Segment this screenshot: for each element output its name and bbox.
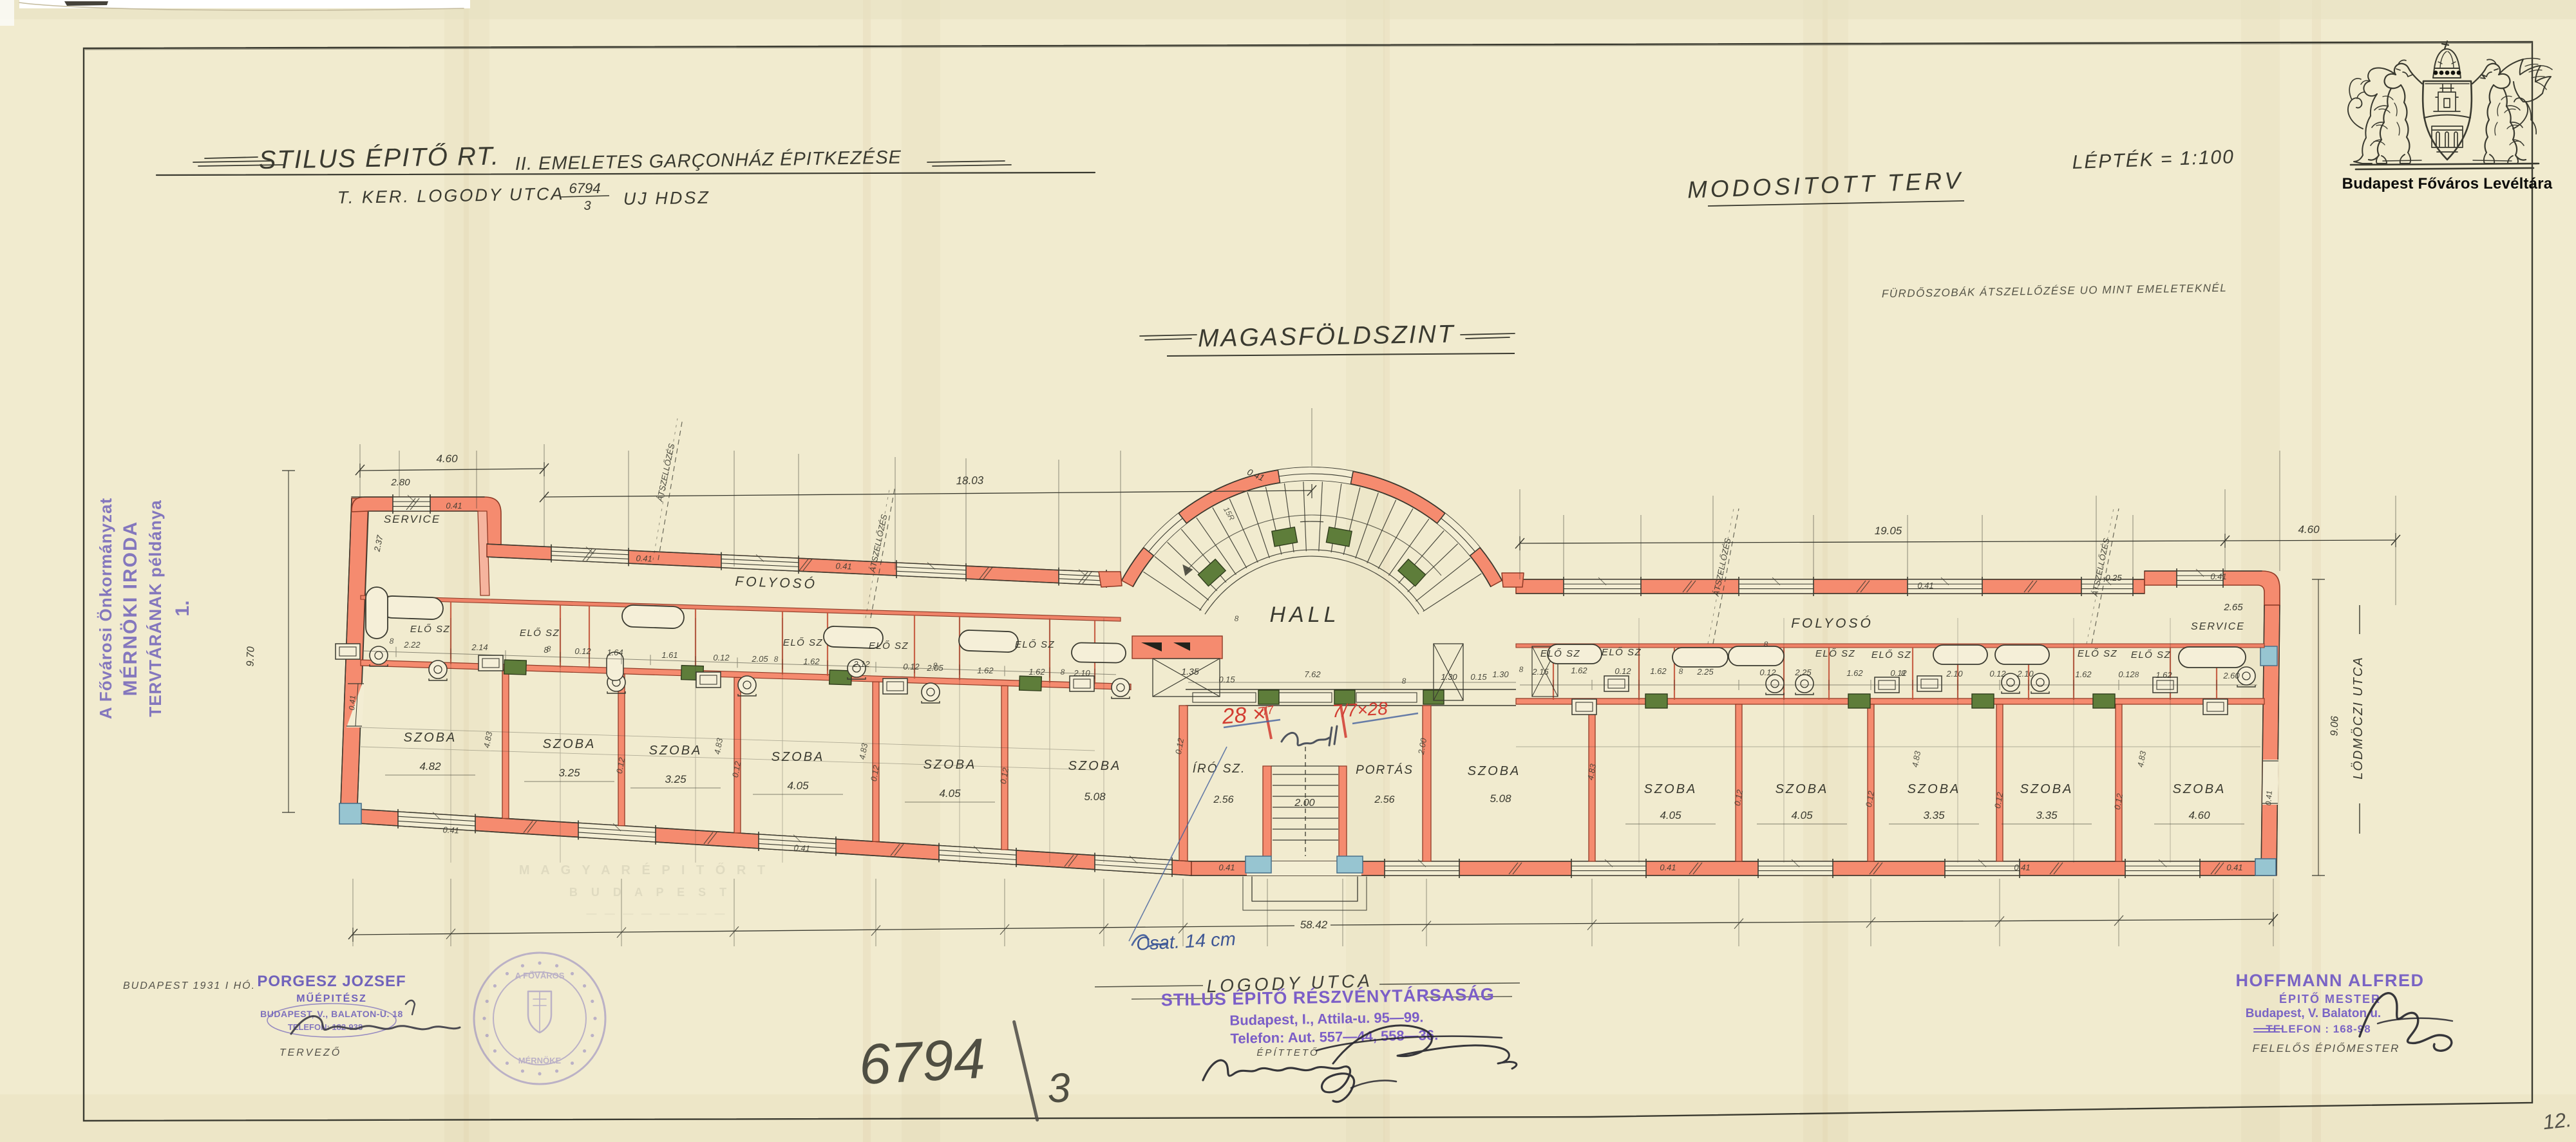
svg-text:FELELŐS ÉPIŐMESTER: FELELŐS ÉPIŐMESTER [2253, 1042, 2400, 1054]
svg-text:ELŐ SZ: ELŐ SZ [1815, 648, 1855, 659]
svg-text:8: 8 [1764, 640, 1768, 649]
svg-text:HOFFMANN ALFRED: HOFFMANN ALFRED [2236, 971, 2425, 990]
svg-text:4.05: 4.05 [1660, 809, 1681, 821]
svg-text:0.41: 0.41 [1660, 863, 1676, 872]
svg-text:8: 8 [1061, 668, 1065, 677]
svg-text:7.62: 7.62 [1304, 669, 1321, 679]
svg-text:0.41: 0.41 [347, 695, 357, 711]
svg-text:ELŐ SZ: ELŐ SZ [1602, 647, 1642, 658]
svg-text:8: 8 [1901, 669, 1906, 678]
svg-text:9.70: 9.70 [245, 646, 256, 667]
svg-text:12.: 12. [2542, 1108, 2573, 1134]
svg-text:1.62: 1.62 [2155, 670, 2172, 680]
svg-text:SZOBA: SZOBA [1908, 782, 1961, 796]
svg-text:3.35: 3.35 [1923, 809, 1945, 821]
svg-text:MÉRNÖKI IRODA: MÉRNÖKI IRODA [119, 521, 141, 697]
svg-text:FOLYOSÓ: FOLYOSÓ [1791, 616, 1873, 631]
svg-text:A FŐVÁROS: A FŐVÁROS [515, 971, 565, 980]
svg-text:0.41: 0.41 [446, 501, 462, 510]
svg-text:0.15: 0.15 [1470, 672, 1487, 682]
svg-text:PORGESZ JOZSEF: PORGESZ JOZSEF [257, 973, 406, 990]
svg-text:8: 8 [1235, 614, 1239, 623]
svg-text:5.08: 5.08 [1490, 792, 1511, 805]
svg-text:8: 8 [2135, 670, 2139, 679]
svg-text:4.82: 4.82 [419, 760, 441, 772]
svg-text:0.41: 0.41 [1917, 581, 1933, 590]
svg-text:8: 8 [1519, 665, 1524, 674]
svg-text:T. KER. LOGODY UTCA: T. KER. LOGODY UTCA [337, 184, 565, 207]
svg-text:MAGASFÖLDSZINT: MAGASFÖLDSZINT [1198, 321, 1455, 353]
svg-text:SERVICE: SERVICE [2191, 621, 2245, 632]
svg-text:ELŐ SZ: ELŐ SZ [2131, 650, 2171, 660]
svg-text:SZOBA: SZOBA [543, 737, 596, 751]
svg-text:0.41: 0.41 [2226, 863, 2242, 872]
svg-text:3: 3 [583, 199, 591, 213]
svg-text:3.25: 3.25 [665, 773, 687, 785]
svg-text:0.12: 0.12 [1989, 669, 2006, 679]
svg-text:Budapest Főváros Levéltára: Budapest Főváros Levéltára [2342, 175, 2553, 192]
svg-text:8: 8 [774, 655, 779, 664]
svg-text:2.10: 2.10 [1946, 669, 1963, 679]
svg-text:4.05: 4.05 [787, 780, 809, 792]
svg-text:0.15: 0.15 [1218, 675, 1235, 684]
svg-text:6794: 6794 [569, 180, 601, 196]
svg-text:ELŐ SZ: ELŐ SZ [520, 628, 560, 639]
svg-text:2.56: 2.56 [1374, 794, 1394, 805]
svg-text:ELŐ SZ: ELŐ SZ [410, 624, 450, 635]
svg-text:2.00: 2.00 [1294, 798, 1314, 809]
svg-text:7/7×28: 7/7×28 [1332, 698, 1388, 722]
svg-text:5.08: 5.08 [1084, 791, 1106, 803]
svg-text:8: 8 [1402, 677, 1406, 686]
svg-text:1.: 1. [172, 600, 193, 616]
svg-text:ÉPITŐ MESTER: ÉPITŐ MESTER [2279, 992, 2381, 1006]
svg-text:9.06: 9.06 [2329, 716, 2340, 736]
svg-text:8: 8 [933, 661, 938, 670]
svg-text:0.12: 0.12 [713, 653, 730, 662]
svg-text:ELŐ SZ: ELŐ SZ [783, 637, 823, 648]
svg-text:0.41: 0.41 [2264, 791, 2274, 806]
svg-text:0.12: 0.12 [1615, 666, 1631, 676]
svg-text:BUDAPEST 1931 I HÓ.: BUDAPEST 1931 I HÓ. [123, 979, 256, 991]
svg-text:Budapest, V. Balaton u.: Budapest, V. Balaton u. [2246, 1007, 2381, 1020]
svg-text:0.41: 0.41 [2014, 863, 2030, 872]
svg-text:A Fővárosi Önkormányzat: A Fővárosi Önkormányzat [96, 498, 115, 719]
svg-text:0.41: 0.41 [2210, 572, 2226, 581]
svg-text:2.12: 2.12 [853, 659, 870, 669]
svg-text:1.62: 1.62 [1571, 666, 1587, 675]
svg-text:TERVTÁRÁNAK példánya: TERVTÁRÁNAK példánya [146, 500, 165, 716]
svg-text:ELŐ SZ: ELŐ SZ [1871, 650, 1911, 660]
svg-text:1.30: 1.30 [1492, 669, 1509, 679]
svg-text:HALL: HALL [1269, 603, 1340, 627]
svg-text:1.64: 1.64 [607, 648, 623, 657]
svg-text:1.62: 1.62 [1650, 666, 1667, 676]
svg-text:0.41: 0.41 [636, 554, 652, 564]
svg-text:SZOBA: SZOBA [1644, 782, 1698, 796]
svg-text:1.30: 1.30 [1441, 672, 1457, 682]
svg-text:B U D A P E S T: B U D A P E S T [569, 886, 732, 899]
svg-text:M A G Y A R É P I T Ő R T: M A G Y A R É P I T Ő R T [519, 863, 769, 877]
svg-text:4.05: 4.05 [939, 787, 961, 800]
svg-text:SZOBA: SZOBA [2020, 782, 2074, 796]
svg-text:ELŐ SZ: ELŐ SZ [1015, 639, 1055, 650]
svg-text:ÍRÓ SZ.: ÍRÓ SZ. [1193, 762, 1246, 776]
svg-text:SZOBA: SZOBA [1776, 782, 1829, 796]
svg-text:LÖDMÖCZI UTCA: LÖDMÖCZI UTCA [2351, 656, 2365, 780]
svg-text:2.25: 2.25 [1794, 668, 1812, 677]
svg-text:1.62: 1.62 [2075, 669, 2092, 679]
svg-text:2.60: 2.60 [2222, 671, 2240, 680]
svg-text:ELŐ SZ: ELŐ SZ [869, 641, 909, 651]
svg-text:4.05: 4.05 [1791, 809, 1813, 821]
svg-text:4.60: 4.60 [2188, 809, 2210, 821]
svg-text:1.35: 1.35 [1181, 666, 1198, 677]
svg-text:18.03: 18.03 [956, 474, 983, 487]
svg-text:PORTÁS: PORTÁS [1356, 763, 1414, 777]
svg-text:0.12: 0.12 [2118, 669, 2135, 679]
svg-text:0.25: 0.25 [2105, 573, 2122, 583]
svg-text:ELŐ SZ: ELŐ SZ [2078, 648, 2117, 659]
svg-text:SZOBA: SZOBA [772, 750, 825, 764]
svg-text:ÉPÍTTETŐ: ÉPÍTTETŐ [1256, 1047, 1319, 1058]
svg-text:2.15: 2.15 [1531, 667, 1549, 677]
svg-text:ELŐ SZ: ELŐ SZ [1540, 648, 1580, 659]
svg-text:6794: 6794 [857, 1026, 987, 1096]
svg-text:3.35: 3.35 [2036, 809, 2058, 821]
svg-text:2.22: 2.22 [403, 640, 421, 650]
svg-text:2.05: 2.05 [751, 654, 768, 664]
svg-text:0.12: 0.12 [1759, 668, 1776, 677]
svg-text:58.42: 58.42 [1300, 919, 1328, 931]
svg-text:SZOBA: SZOBA [1468, 764, 1521, 778]
svg-text:SZOBA: SZOBA [404, 731, 457, 745]
svg-text:2.65: 2.65 [2223, 602, 2243, 613]
svg-text:0.41: 0.41 [1218, 863, 1235, 872]
svg-text:4.60: 4.60 [436, 453, 458, 465]
svg-text:SZOBA: SZOBA [1068, 759, 1122, 773]
svg-text:— — — — — — — —: — — — — — — — — [586, 908, 727, 919]
svg-text:3.25: 3.25 [558, 767, 580, 779]
svg-text:SZOBA: SZOBA [2173, 782, 2226, 796]
svg-text:4.60: 4.60 [2298, 523, 2320, 536]
svg-text:2.80: 2.80 [390, 477, 410, 488]
svg-text:UJ HDSZ: UJ HDSZ [623, 188, 711, 209]
svg-text:3: 3 [1046, 1064, 1072, 1112]
svg-text:8: 8 [547, 644, 551, 653]
svg-text:8: 8 [1679, 667, 1683, 676]
svg-text:19.05: 19.05 [1875, 525, 1902, 537]
svg-text:MŰÉPITÉSZ: MŰÉPITÉSZ [296, 992, 367, 1004]
svg-text:0.12: 0.12 [903, 662, 920, 671]
svg-text:SZOBA: SZOBA [649, 744, 703, 758]
svg-text:2.14: 2.14 [471, 642, 488, 652]
svg-text:MÉRNÖKE: MÉRNÖKE [518, 1056, 562, 1065]
svg-text:2.25: 2.25 [1696, 667, 1714, 677]
svg-text:0.41: 0.41 [793, 843, 810, 853]
svg-text:STILUS ÉPITŐ RT.: STILUS ÉPITŐ RT. [258, 141, 500, 174]
svg-text:1.62: 1.62 [1846, 668, 1863, 678]
svg-text:2.56: 2.56 [1213, 794, 1233, 805]
svg-text:8: 8 [390, 637, 394, 646]
svg-text:SERVICE: SERVICE [384, 513, 440, 525]
svg-text:1.61: 1.61 [661, 650, 677, 660]
svg-text:2.10: 2.10 [2016, 669, 2034, 679]
svg-text:FOLYOSÓ: FOLYOSÓ [735, 574, 817, 592]
svg-text:TERVEZŐ: TERVEZŐ [279, 1046, 341, 1058]
svg-text:0.41: 0.41 [835, 561, 852, 572]
